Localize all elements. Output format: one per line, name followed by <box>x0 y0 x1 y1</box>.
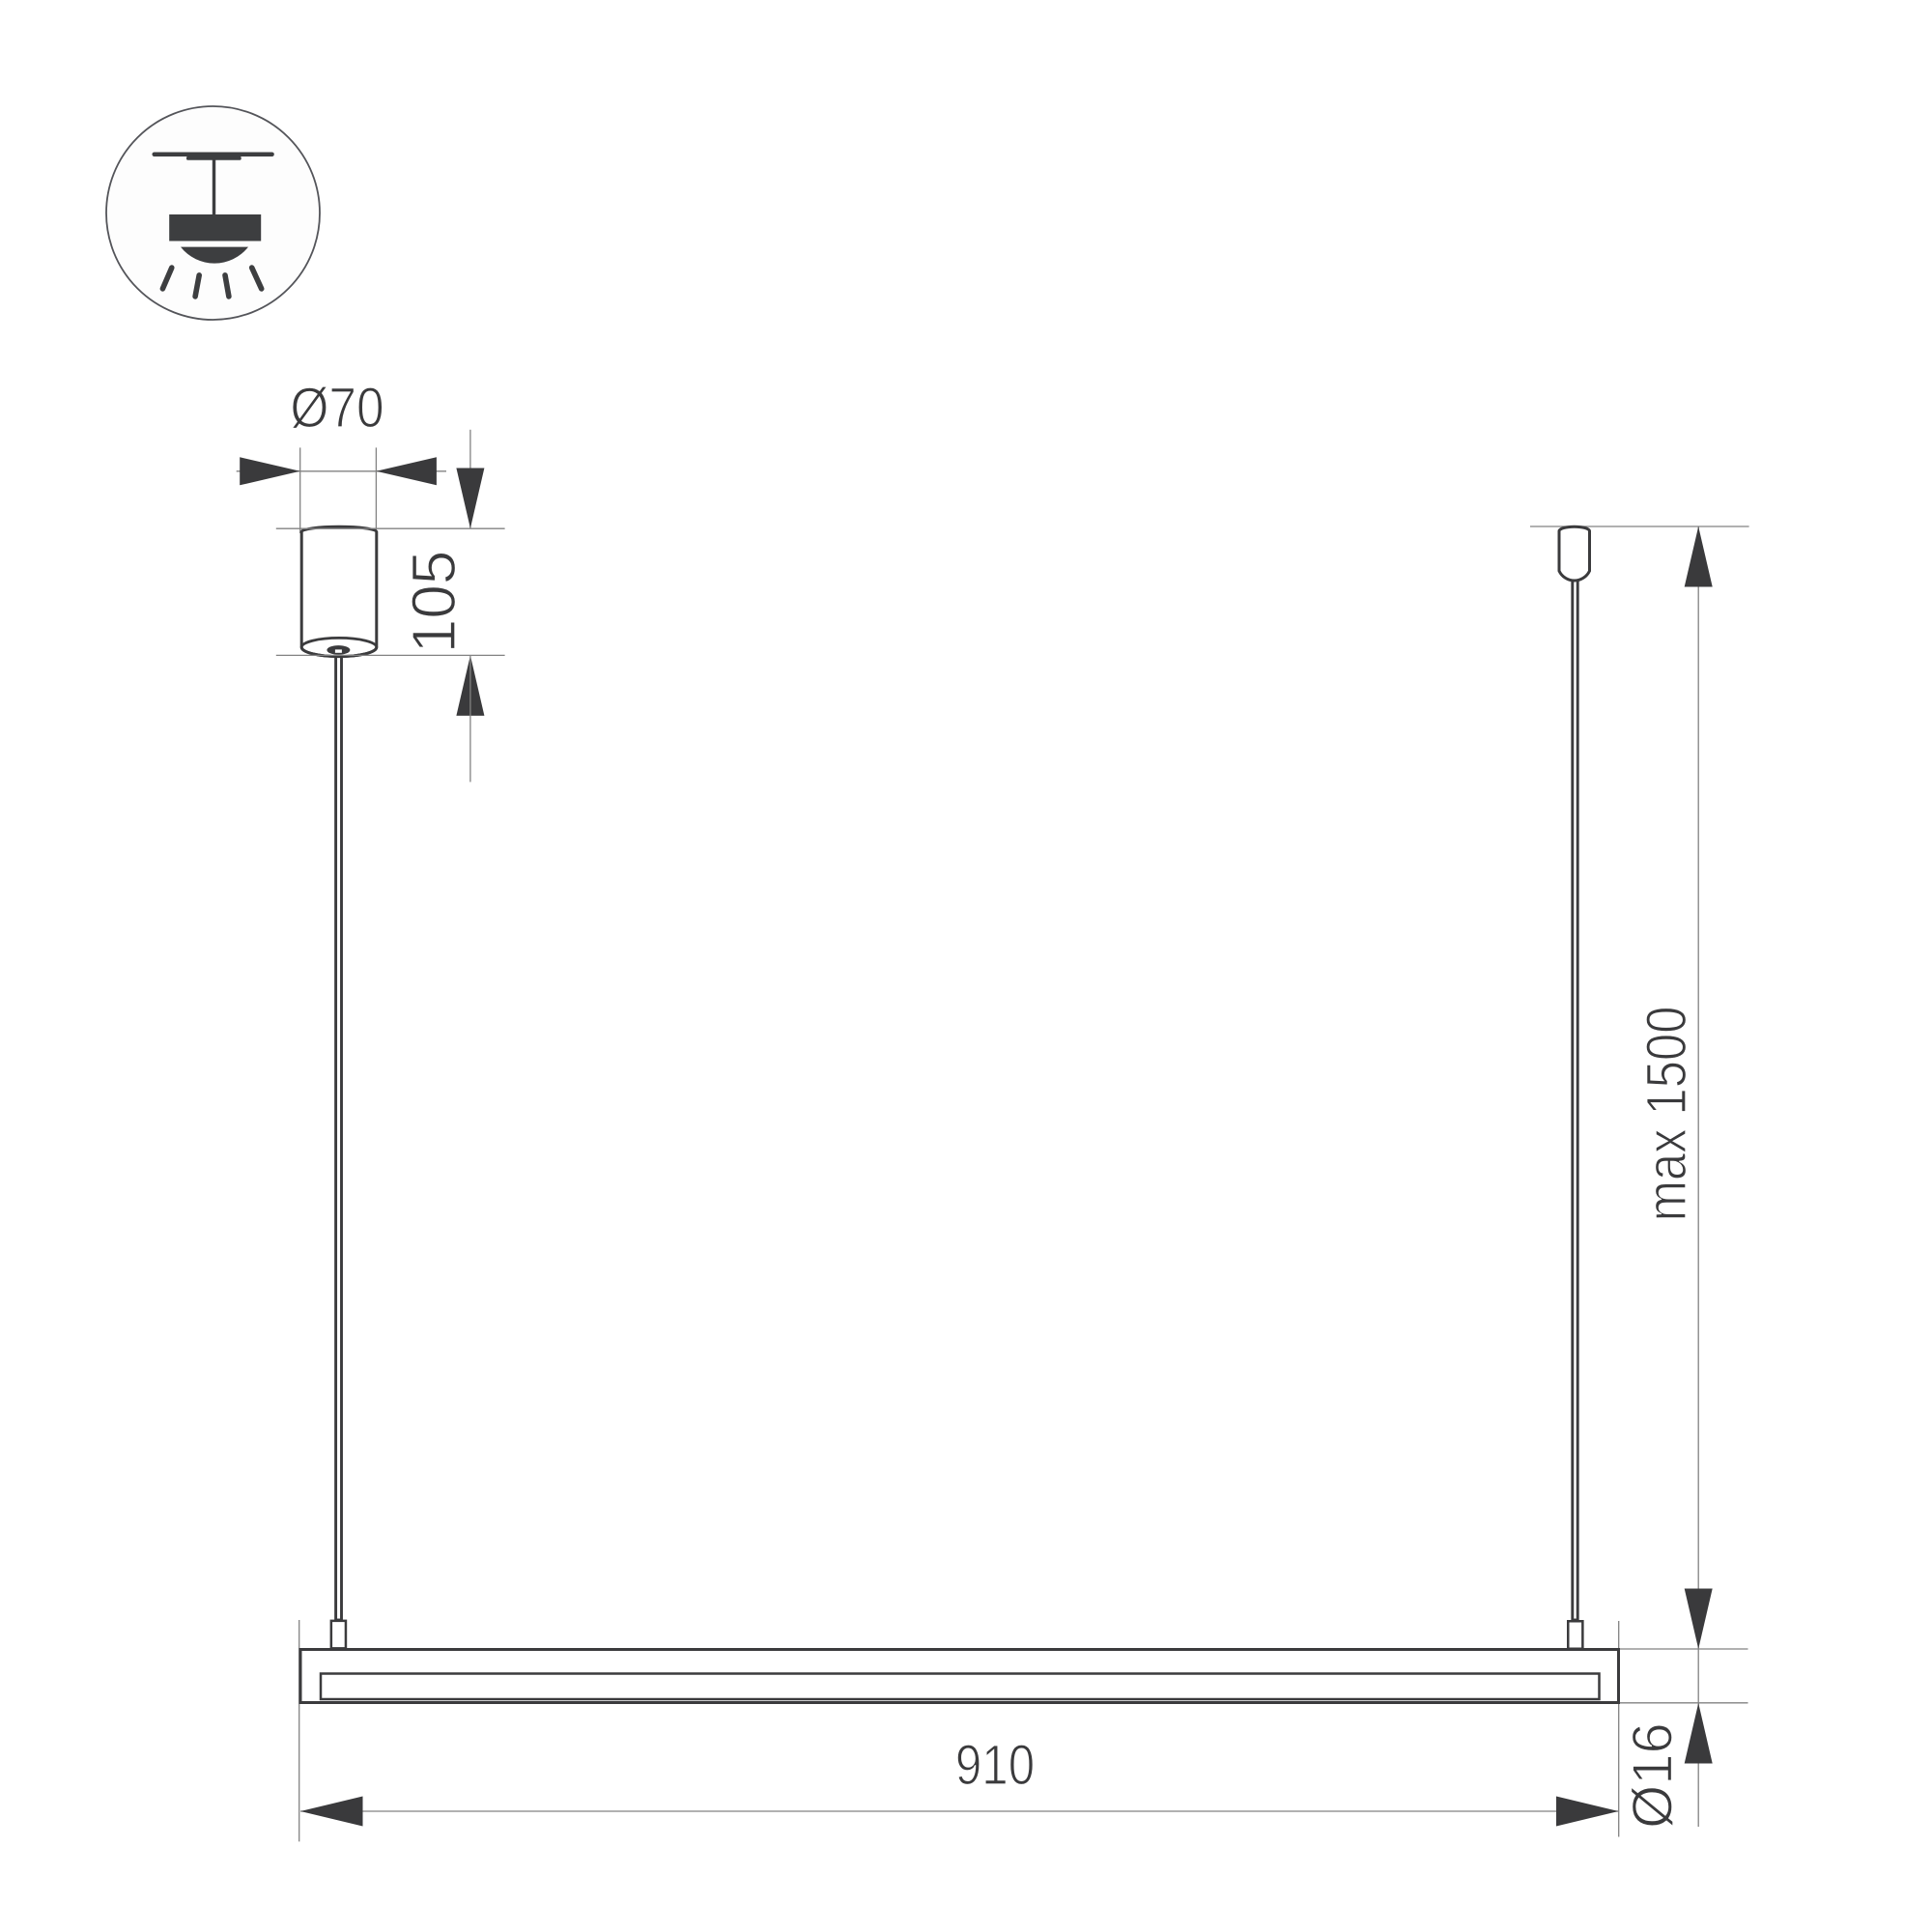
svg-text:max 1500: max 1500 <box>1635 1007 1698 1222</box>
svg-text:910: 910 <box>955 1734 1035 1797</box>
svg-text:Ø16: Ø16 <box>1622 1722 1685 1829</box>
svg-text:Ø70: Ø70 <box>290 376 384 440</box>
svg-text:105: 105 <box>399 551 469 654</box>
